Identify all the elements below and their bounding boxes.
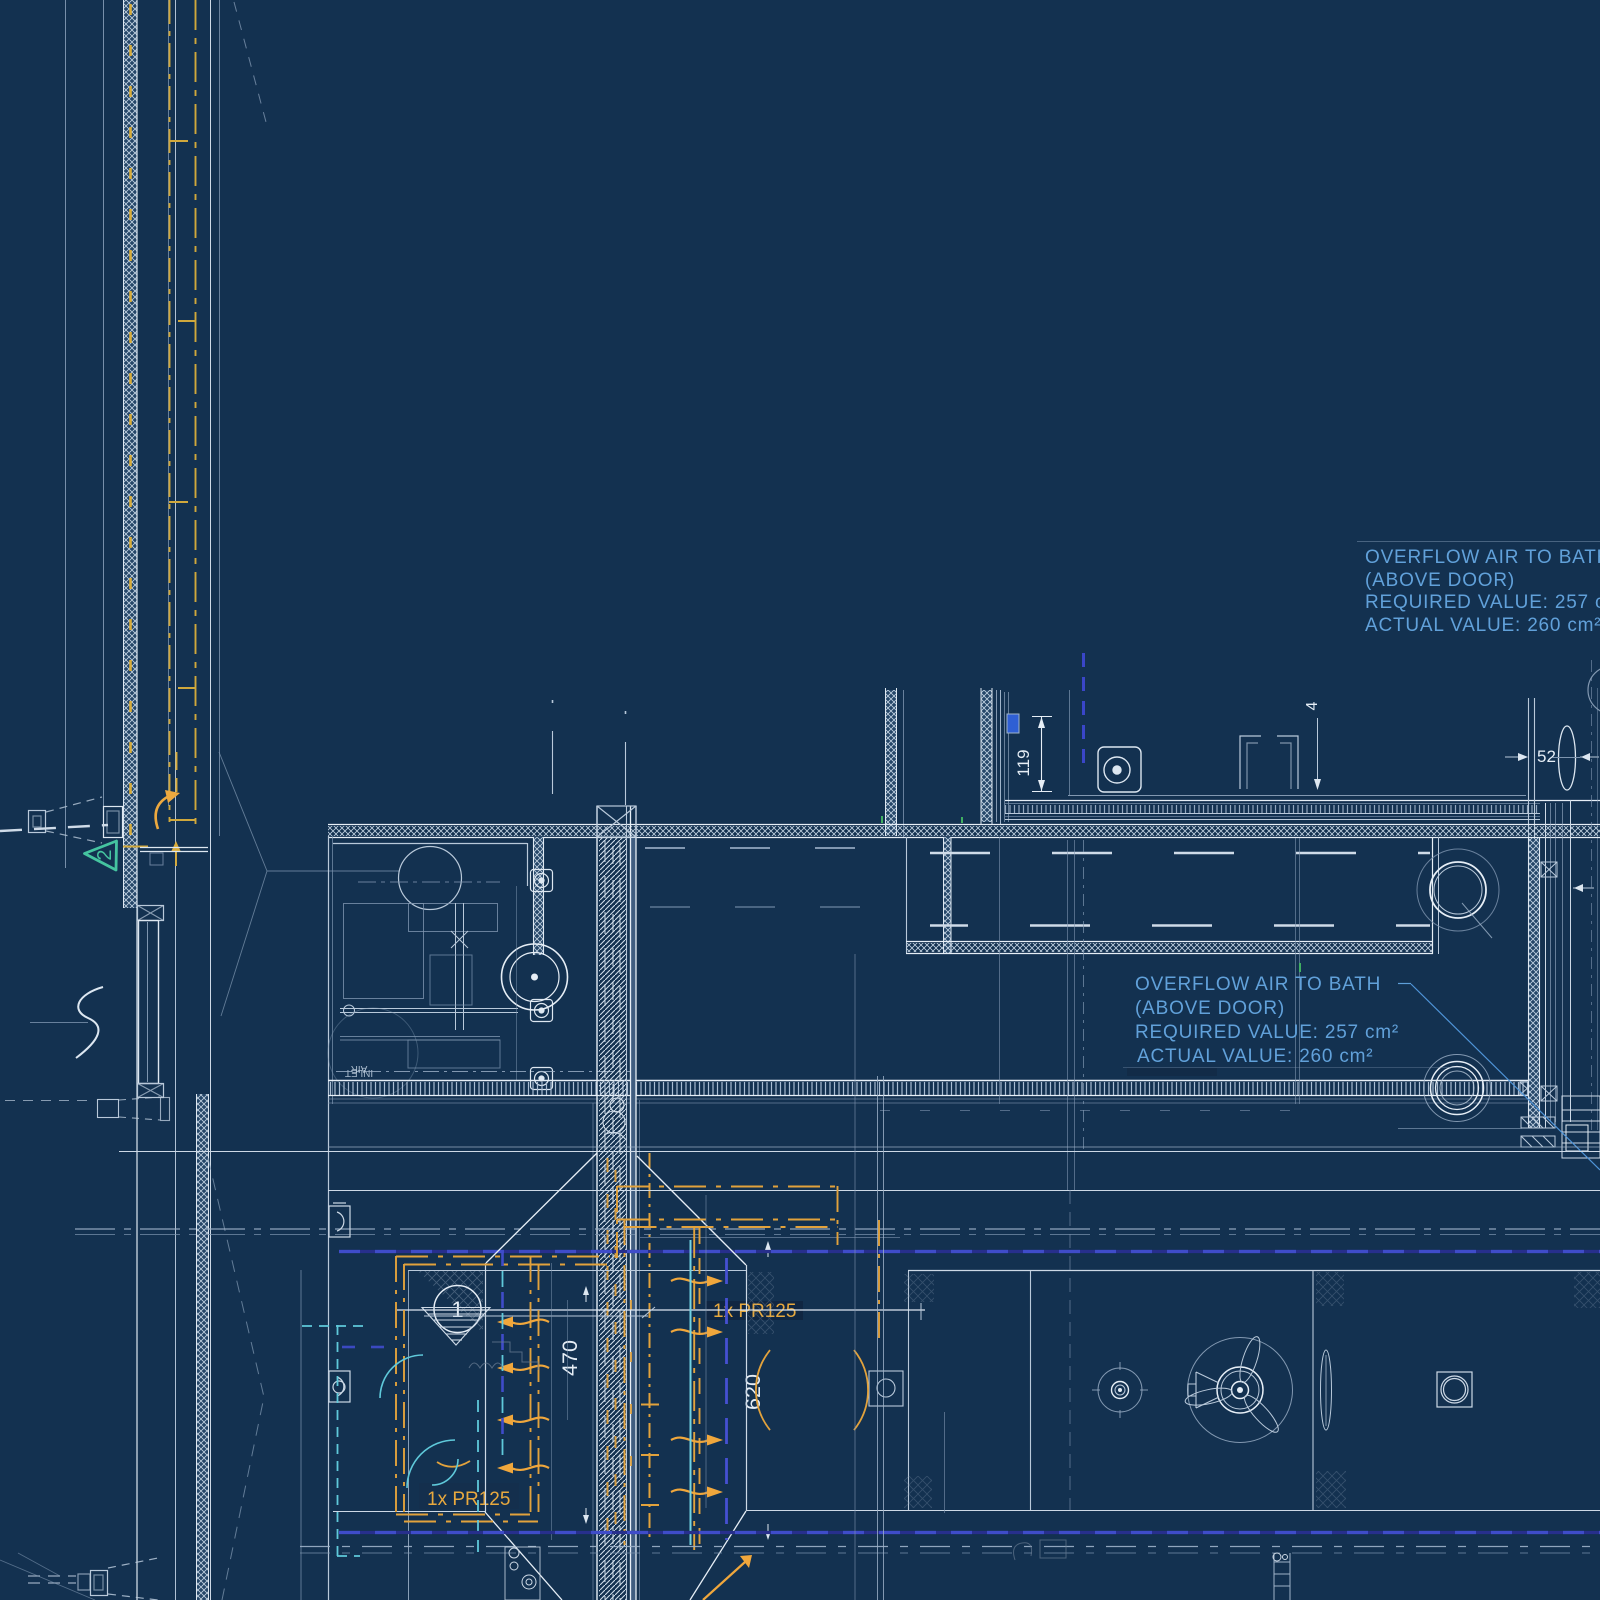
- svg-text:(ABOVE DOOR): (ABOVE DOOR): [1135, 998, 1285, 1019]
- svg-text:ACTUAL VALUE: 260 cm²: ACTUAL VALUE: 260 cm²: [1365, 615, 1600, 636]
- svg-text:1x PR125: 1x PR125: [427, 1489, 510, 1510]
- svg-text:REQUIRED VALUE: 257 cm²: REQUIRED VALUE: 257 cm²: [1135, 1022, 1399, 1043]
- svg-text:4: 4: [1304, 701, 1321, 710]
- svg-text:REQUIRED VALUE: 257 cm²: REQUIRED VALUE: 257 cm²: [1365, 592, 1600, 613]
- svg-text:52: 52: [1537, 747, 1556, 766]
- svg-text:OVERFLOW AIR TO BATH: OVERFLOW AIR TO BATH: [1365, 547, 1600, 568]
- svg-text:2: 2: [94, 849, 116, 860]
- svg-text:ACTUAL VALUE: 260 cm²: ACTUAL VALUE: 260 cm²: [1137, 1046, 1373, 1067]
- svg-text:INLET: INLET: [345, 1067, 373, 1078]
- svg-text:OVERFLOW AIR TO BATH: OVERFLOW AIR TO BATH: [1135, 974, 1381, 995]
- svg-text:(ABOVE DOOR): (ABOVE DOOR): [1365, 570, 1515, 591]
- svg-text:620: 620: [741, 1374, 765, 1410]
- svg-text:119: 119: [1014, 749, 1033, 776]
- svg-text:470: 470: [558, 1340, 582, 1376]
